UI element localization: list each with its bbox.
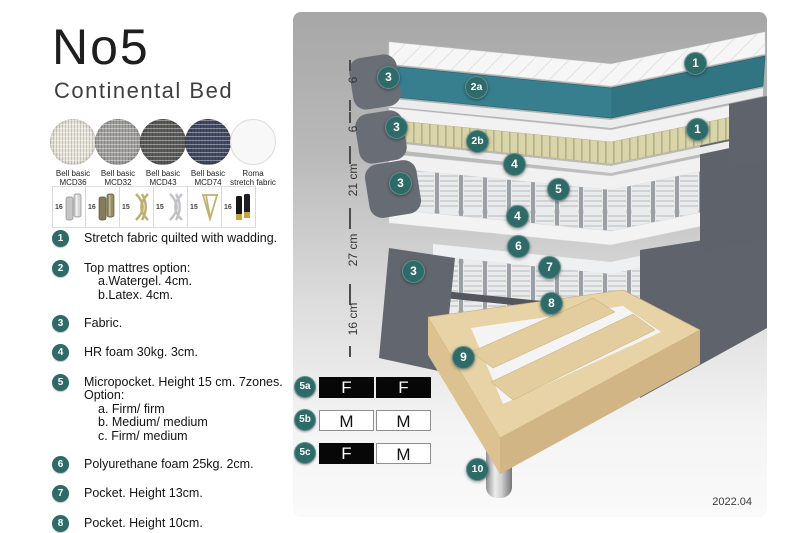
version-stamp: 2022.04: [712, 496, 752, 508]
wood-base: [428, 290, 700, 474]
callout-2a: 2a: [465, 76, 488, 99]
dimension-label-leg: 16 cm: [346, 297, 360, 341]
callout-4-top: 4: [503, 153, 526, 176]
firmness-cell: M: [376, 443, 431, 464]
leg-option-gold-hairpin[interactable]: 15: [188, 187, 222, 227]
fabric-swatch-roma[interactable]: [230, 119, 276, 165]
leg-twist-gold-icon: [131, 191, 153, 223]
dimension-label-latex-layer: 6: [346, 107, 360, 151]
diagram-panel: 6 6 21 cm 27 cm 16 cm 1 2a 3 1 2b 3 4 5 …: [293, 12, 767, 517]
spec-list: 1 Stretch fabric quilted with wadding. 2…: [52, 230, 297, 533]
leg-cylinder-silver-icon: [64, 191, 85, 223]
spec-number-badge: 3: [52, 315, 69, 332]
spec-number-badge: 6: [52, 456, 69, 473]
fabric-swatch-mcd74[interactable]: [185, 119, 231, 165]
callout-4-bottom: 4: [506, 205, 529, 228]
spec-item-3: 3 Fabric.: [52, 315, 297, 332]
callout-3-second: 3: [385, 116, 408, 139]
leg-twist-silver-icon: [165, 191, 187, 223]
leg-hairpin-gold-icon: [199, 191, 221, 223]
fabric-swatch: Bell basicMCD74: [185, 119, 231, 188]
fabric-swatch: Bell basicMCD32: [95, 119, 141, 188]
fabric-swatch: Bell basicMCD36: [50, 119, 96, 188]
dimension-label-middle-mattress: 21 cm: [346, 158, 360, 202]
callout-2b: 2b: [466, 130, 489, 153]
spec-number-badge: 8: [52, 515, 69, 532]
spec-item-2: 2 Top mattres option: a.Watergel. 4cm. b…: [52, 260, 297, 303]
callout-6: 6: [507, 235, 530, 258]
fabric-swatches: Bell basicMCD36 Bell basicMCD32 Bell bas…: [50, 119, 275, 188]
callout-1-top: 1: [684, 52, 707, 75]
spec-number-badge: 5: [52, 374, 69, 391]
leg-option-silver-cylinder[interactable]: 16: [52, 187, 86, 227]
firmness-cell: M: [319, 410, 374, 431]
spec-item-7: 7 Pocket. Height 13cm.: [52, 485, 297, 502]
callout-3-third: 3: [389, 172, 412, 195]
fabric-swatch: Bell basicMCD43: [140, 119, 186, 188]
firmness-row-5c: 5c F M: [294, 442, 431, 464]
fabric-swatch-mcd43[interactable]: [140, 119, 186, 165]
leg-cylinder-black-gold-icon: [233, 191, 254, 223]
firmness-cell: M: [376, 410, 431, 431]
leg-option-bronze-cylinder[interactable]: 16: [86, 187, 120, 227]
spec-number-badge: 4: [52, 344, 69, 361]
callout-5: 5: [547, 178, 570, 201]
callout-9: 9: [452, 346, 475, 369]
callout-8: 8: [540, 292, 563, 315]
callout-10: 10: [466, 458, 489, 481]
spec-item-4: 4 HR foam 30kg. 3cm.: [52, 344, 297, 361]
leg-options: 16 16 15: [52, 186, 256, 228]
firmness-badge-5a: 5a: [294, 376, 316, 398]
firmness-cell: F: [319, 443, 374, 464]
callout-1-second: 1: [686, 118, 709, 141]
firmness-row-5a: 5a F F: [294, 376, 431, 398]
fabric-swatch-mcd36[interactable]: [50, 119, 96, 165]
spec-number-badge: 2: [52, 260, 69, 277]
leg-option-black-gold-cylinder[interactable]: 16: [222, 187, 256, 227]
spec-item-1: 1 Stretch fabric quilted with wadding.: [52, 230, 297, 247]
page-subtitle: Continental Bed: [54, 78, 233, 104]
dimension-label-lower-mattress: 27 cm: [346, 228, 360, 272]
callout-3-fourth: 3: [402, 260, 425, 283]
leg-option-silver-twist[interactable]: 15: [154, 187, 188, 227]
firmness-row-5b: 5b M M: [294, 409, 431, 431]
spec-item-5: 5 Micropocket. Height 15 cm. 7zones. Opt…: [52, 374, 297, 444]
ruler-tick: [349, 346, 351, 357]
spec-number-badge: 1: [52, 230, 69, 247]
leg-option-gold-twist[interactable]: 15: [120, 187, 154, 227]
firmness-badge-5c: 5c: [294, 442, 316, 464]
fabric-swatch: Romastretch fabric: [230, 119, 276, 188]
fabric-swatch-mcd32[interactable]: [95, 119, 141, 165]
spec-item-8: 8 Pocket. Height 10cm.: [52, 515, 297, 532]
firmness-badge-5b: 5b: [294, 409, 316, 431]
product-sheet: No5 Continental Bed Bell basicMCD36 Bell…: [0, 0, 800, 533]
callout-7: 7: [538, 256, 561, 279]
firmness-cell: F: [319, 377, 374, 398]
dimension-label-top-mattress: 6: [346, 58, 360, 102]
spec-number-badge: 7: [52, 485, 69, 502]
callout-3-first: 3: [377, 66, 400, 89]
leg-cylinder-bronze-icon: [97, 191, 118, 223]
page-title: No5: [52, 18, 150, 76]
firmness-cell: F: [376, 377, 431, 398]
spec-item-6: 6 Polyurethane foam 25kg. 2cm.: [52, 456, 297, 473]
